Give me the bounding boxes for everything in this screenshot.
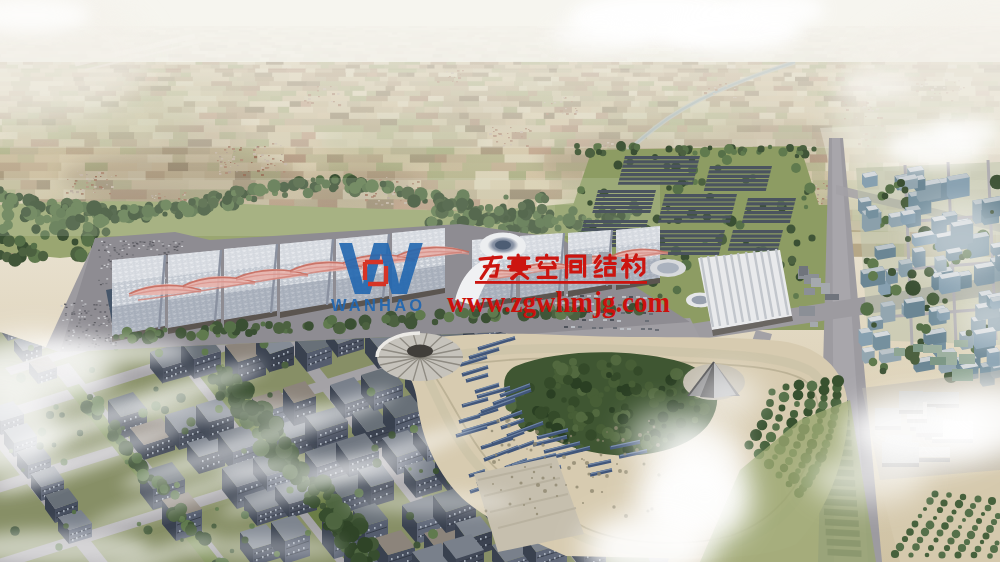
svg-text:WANHAO: WANHAO xyxy=(331,296,425,314)
svg-text:www.zgwhmjg.com: www.zgwhmjg.com xyxy=(447,287,670,318)
